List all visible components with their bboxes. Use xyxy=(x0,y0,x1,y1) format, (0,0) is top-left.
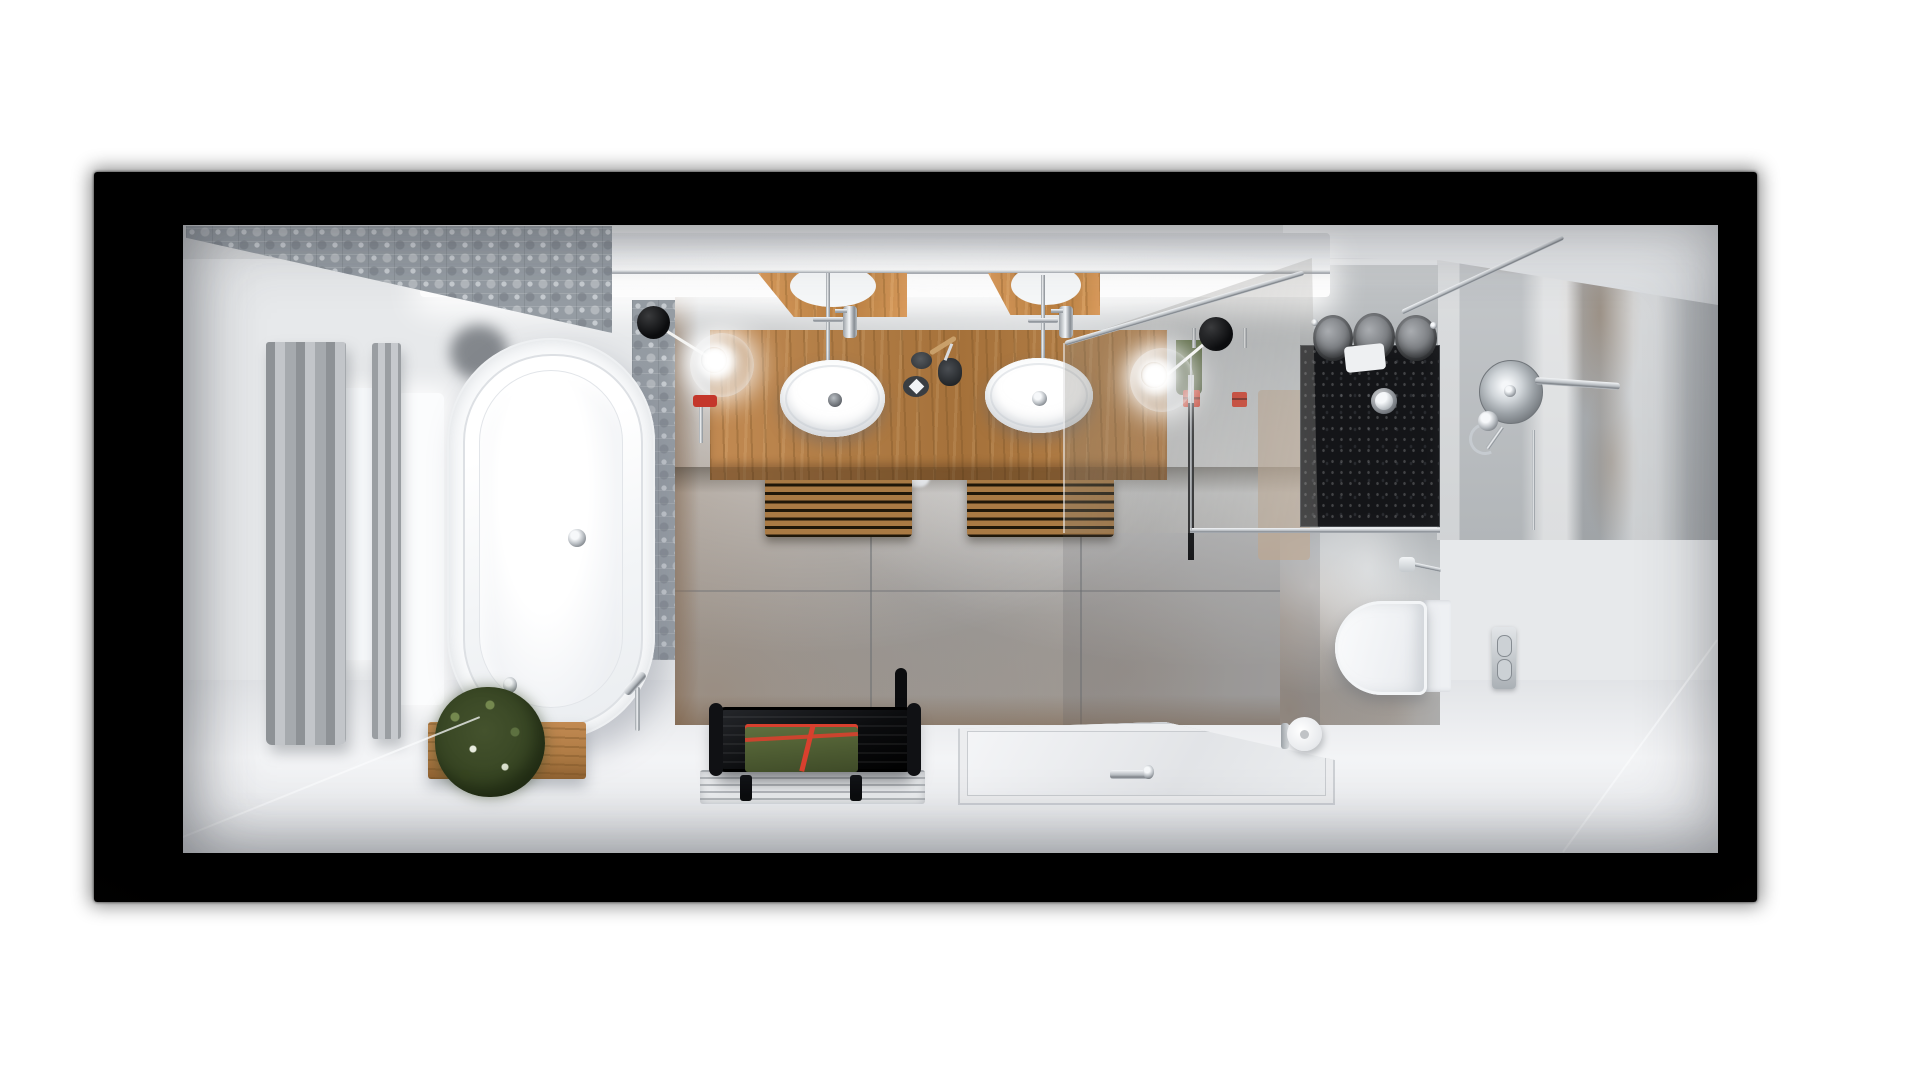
flush-plate-buttons xyxy=(1497,635,1512,657)
shower-mat-knob xyxy=(1143,765,1154,779)
toothbrush-cup xyxy=(938,358,962,386)
faucet-left-handle xyxy=(813,317,843,322)
shelf-screw-right xyxy=(1430,322,1437,329)
bathtub-basin xyxy=(479,370,623,708)
pendant-left-bulb xyxy=(701,347,727,373)
tub-filler-riser xyxy=(635,687,640,731)
flush-plate-button-2 xyxy=(1497,659,1512,681)
window-light-slit xyxy=(344,388,372,660)
plant xyxy=(435,687,545,797)
window-light xyxy=(397,393,444,705)
sink-left-drain xyxy=(828,393,842,407)
bench-leg-1 xyxy=(740,775,752,801)
soap-dish xyxy=(911,352,932,369)
towel-rack-left xyxy=(765,475,912,537)
curtain-panel-right xyxy=(372,343,401,739)
folded-white-towel xyxy=(1344,343,1386,373)
soap-dispenser-left-spout xyxy=(835,309,847,313)
pendant-left-canopy xyxy=(637,306,670,339)
glass-door-edge xyxy=(1532,430,1535,530)
glass-shadow-zone xyxy=(1063,533,1320,725)
toilet-bowl xyxy=(1335,601,1427,695)
tub-filler-pole xyxy=(699,407,703,443)
shower-drain xyxy=(1371,388,1397,414)
led-profile-rail xyxy=(560,270,1330,274)
bathtub-drain xyxy=(568,529,586,547)
room-frame xyxy=(94,172,1757,902)
toilet-cistern xyxy=(1423,600,1451,692)
bench-end-bar-right xyxy=(907,703,921,776)
sink-right-drain xyxy=(1032,391,1047,406)
bench-leg-2 xyxy=(850,775,862,801)
rain-shower-hub xyxy=(1504,385,1516,397)
curtain-panel-left xyxy=(266,342,346,745)
bathroom-room xyxy=(183,225,1718,853)
red-accent-tub-filler xyxy=(693,395,717,407)
floor-mat xyxy=(700,770,925,804)
shower-tray xyxy=(1300,345,1440,527)
render-canvas xyxy=(0,0,1920,1080)
paper-roll-core xyxy=(1300,730,1309,739)
wall-accessory-cylinder xyxy=(1399,557,1415,572)
bench-end-bar-left xyxy=(709,703,723,776)
faucet-right-handle xyxy=(1028,318,1058,323)
pattern-tiles xyxy=(186,226,612,333)
pendant-right-bulb xyxy=(1141,362,1167,388)
pendant-right-canopy xyxy=(1199,317,1233,351)
glass-bottom-rail xyxy=(1190,528,1440,533)
soap-dispenser-right-spout xyxy=(1051,309,1063,313)
